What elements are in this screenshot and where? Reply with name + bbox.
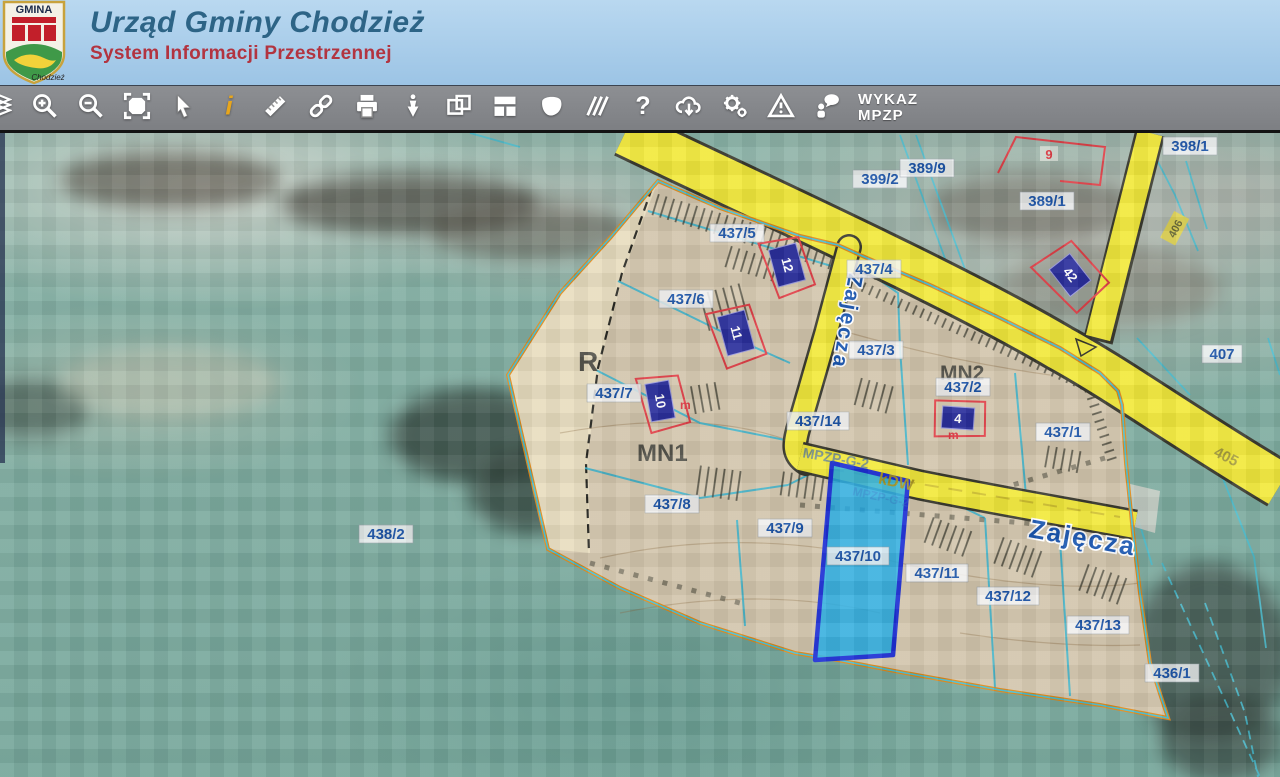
select-pointer-button[interactable]	[168, 87, 198, 129]
location-pin-button[interactable]	[398, 87, 428, 129]
layers-icon	[0, 93, 12, 124]
zoom-in-button[interactable]	[30, 87, 60, 129]
link-button[interactable]	[306, 87, 336, 129]
person-chat-icon	[812, 92, 842, 125]
hatch-button[interactable]	[582, 87, 612, 129]
wykaz-line1: WYKAZ	[858, 92, 918, 108]
svg-text:i: i	[225, 91, 233, 121]
application-window: GMINA Chodzież Urząd Gminy Chodzież Syst…	[0, 0, 1280, 777]
print-icon	[353, 92, 381, 125]
identify-info-button[interactable]: i	[214, 87, 244, 129]
link-icon	[307, 92, 335, 125]
warning-triangle-icon	[767, 92, 795, 125]
page-title: Urząd Gminy Chodzież	[90, 6, 425, 40]
hatch-lines-icon	[583, 92, 611, 125]
logo-castle	[12, 17, 56, 41]
overlap-squares-icon	[445, 92, 473, 125]
map-canvas[interactable]: MPZP-G-2 12 11 10 m	[0, 133, 1280, 777]
layout-button[interactable]	[490, 87, 520, 129]
header: GMINA Chodzież Urząd Gminy Chodzież Syst…	[0, 0, 1280, 86]
full-extent-button[interactable]	[122, 87, 152, 129]
full-extent-icon	[123, 92, 151, 125]
settings-button[interactable]	[720, 87, 750, 129]
logo-top-text: GMINA	[16, 4, 53, 16]
page-subtitle: System Informacji Przestrzennej	[90, 43, 425, 65]
gears-icon	[720, 92, 750, 125]
toolbar: i ? WYKAZ MPZP	[0, 85, 1280, 133]
wykaz-line2: MPZP	[858, 108, 918, 124]
select-region-button[interactable]	[444, 87, 474, 129]
help-button[interactable]: ?	[628, 87, 658, 129]
polygon-select-button[interactable]	[536, 87, 566, 129]
wykaz-mpzp-button[interactable]: WYKAZ MPZP	[858, 92, 918, 124]
pointer-icon	[170, 93, 196, 124]
help-icon: ?	[631, 91, 655, 126]
zoom-in-icon	[31, 92, 59, 125]
report-problem-button[interactable]	[766, 87, 796, 129]
measure-button[interactable]	[260, 87, 290, 129]
cloud-download-icon	[674, 92, 704, 125]
zoom-out-icon	[77, 92, 105, 125]
map-edge-sliver	[0, 133, 5, 463]
svg-text:?: ?	[635, 92, 650, 120]
download-button[interactable]	[674, 87, 704, 129]
measure-ruler-icon	[261, 92, 289, 125]
location-pin-icon	[400, 92, 426, 125]
contact-button[interactable]	[812, 87, 842, 129]
zoom-out-button[interactable]	[76, 87, 106, 129]
polygon-select-icon	[537, 92, 565, 125]
header-titles: Urząd Gminy Chodzież System Informacji P…	[90, 6, 425, 65]
logo-bottom-text: Chodzież	[31, 73, 64, 82]
print-button[interactable]	[352, 87, 382, 129]
pixelation-overlay	[0, 133, 1280, 777]
layout-icon	[491, 92, 519, 125]
info-icon: i	[216, 91, 242, 126]
gmina-chodziez-logo: GMINA Chodzież	[0, 0, 68, 85]
layers-button[interactable]	[0, 87, 14, 129]
